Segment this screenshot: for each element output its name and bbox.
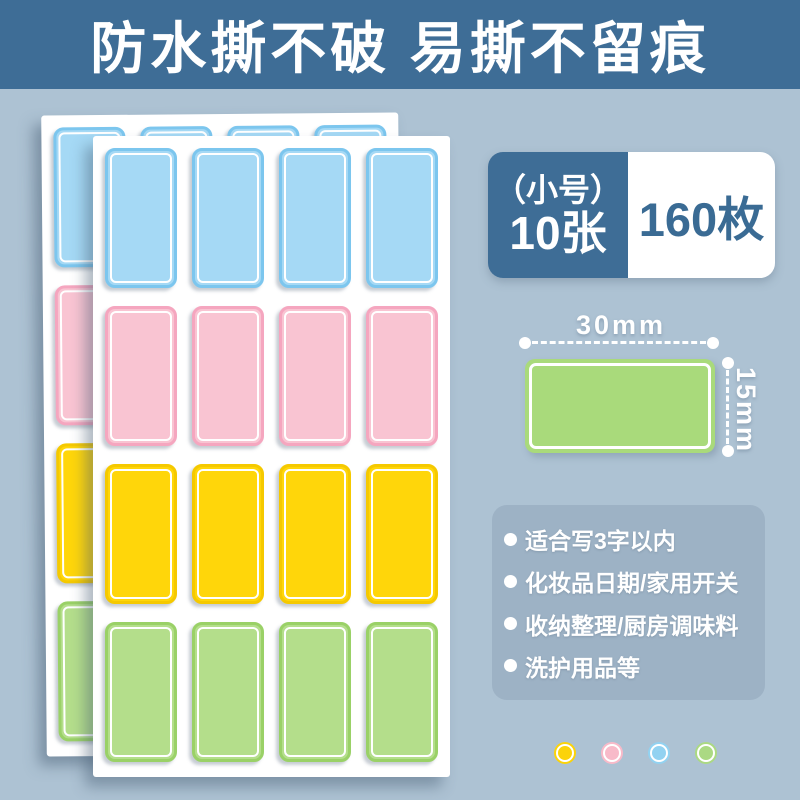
- bullet-dot-icon: [504, 533, 517, 546]
- feature-item-text: 收纳整理/厨房调味料: [525, 607, 738, 641]
- feature-item: 适合写3字以内: [504, 522, 753, 556]
- feature-item-text: 适合写3字以内: [525, 522, 676, 556]
- label-size-sample: [525, 359, 715, 453]
- dimension-endpoint-dot: [707, 337, 719, 349]
- feature-item-text: 洗护用品等: [525, 649, 640, 683]
- piece-count-label: 160枚: [639, 181, 764, 250]
- feature-item: 收纳整理/厨房调味料: [504, 607, 753, 641]
- bullet-dot-icon: [504, 659, 517, 672]
- label-sticker-green: [279, 622, 351, 762]
- features-box: 适合写3字以内化妆品日期/家用开关收纳整理/厨房调味料洗护用品等: [492, 505, 765, 700]
- label-sticker-blue: [366, 148, 438, 288]
- pink-color-dot: [601, 742, 623, 764]
- size-badge-left: （小号） 10张: [488, 152, 628, 278]
- label-sticker-pink: [105, 306, 177, 446]
- header-title: 防水撕不破 易撕不留痕: [90, 4, 710, 85]
- label-sticker-pink: [366, 306, 438, 446]
- green-color-dot: [695, 742, 717, 764]
- label-sticker-green: [105, 622, 177, 762]
- label-sticker-yellow: [105, 464, 177, 604]
- label-sticker-green: [366, 622, 438, 762]
- bullet-dot-icon: [504, 617, 517, 630]
- height-dimension-label: 15mm: [730, 367, 761, 467]
- label-sticker-pink: [279, 306, 351, 446]
- label-sticker-green: [192, 622, 264, 762]
- dashed-line: [726, 370, 729, 444]
- width-dimension-line: [519, 337, 719, 349]
- bullet-dot-icon: [504, 575, 517, 588]
- label-sticker-pink: [192, 306, 264, 446]
- size-label: （小号）: [494, 172, 622, 209]
- feature-item: 化妆品日期/家用开关: [504, 564, 753, 598]
- feature-item: 洗护用品等: [504, 649, 753, 683]
- header-banner: 防水撕不破 易撕不留痕: [0, 0, 800, 89]
- label-sticker-yellow: [192, 464, 264, 604]
- feature-item-text: 化妆品日期/家用开关: [525, 564, 738, 598]
- dashed-line: [532, 341, 706, 344]
- label-grid-front: [105, 148, 438, 762]
- label-sheet-front: [93, 136, 450, 777]
- dimension-endpoint-dot: [519, 337, 531, 349]
- label-sticker-blue: [105, 148, 177, 288]
- label-sticker-blue: [279, 148, 351, 288]
- label-sticker-yellow: [279, 464, 351, 604]
- label-sticker-yellow: [366, 464, 438, 604]
- label-sticker-blue: [192, 148, 264, 288]
- size-badge-right: 160枚: [628, 152, 775, 278]
- yellow-color-dot: [554, 742, 576, 764]
- size-badge: （小号） 10张 160枚: [488, 152, 775, 278]
- sheet-count-label: 10张: [509, 209, 606, 257]
- blue-color-dot: [648, 742, 670, 764]
- color-options-dots: [554, 742, 717, 764]
